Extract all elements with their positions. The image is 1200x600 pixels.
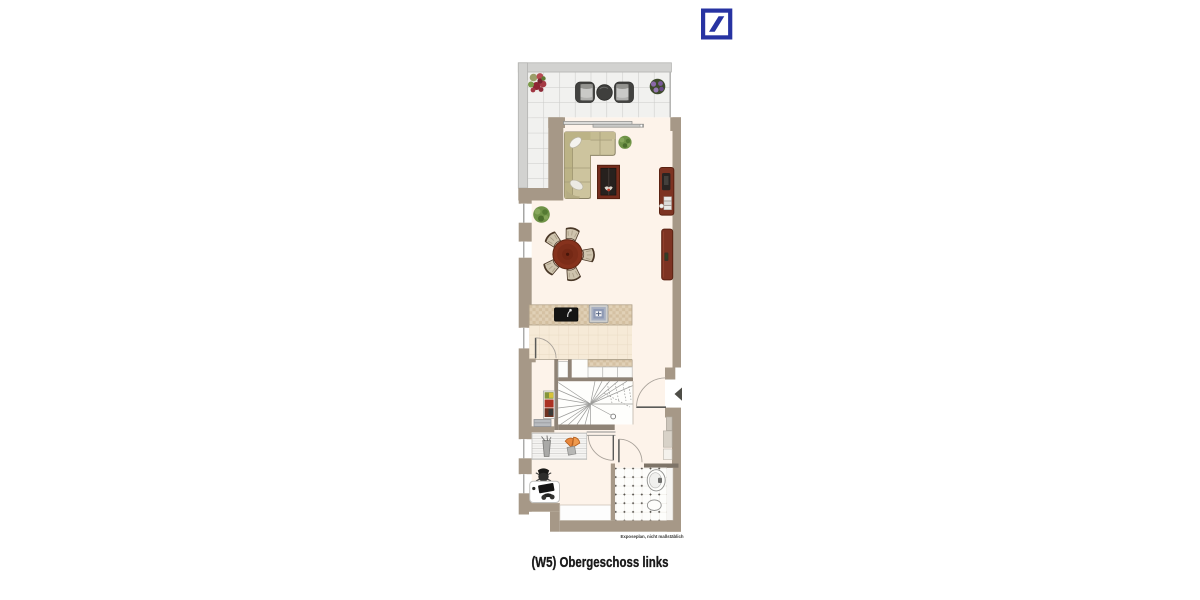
svg-text:Exposeplan, nicht maßstäblich: Exposeplan, nicht maßstäblich — [621, 534, 684, 539]
